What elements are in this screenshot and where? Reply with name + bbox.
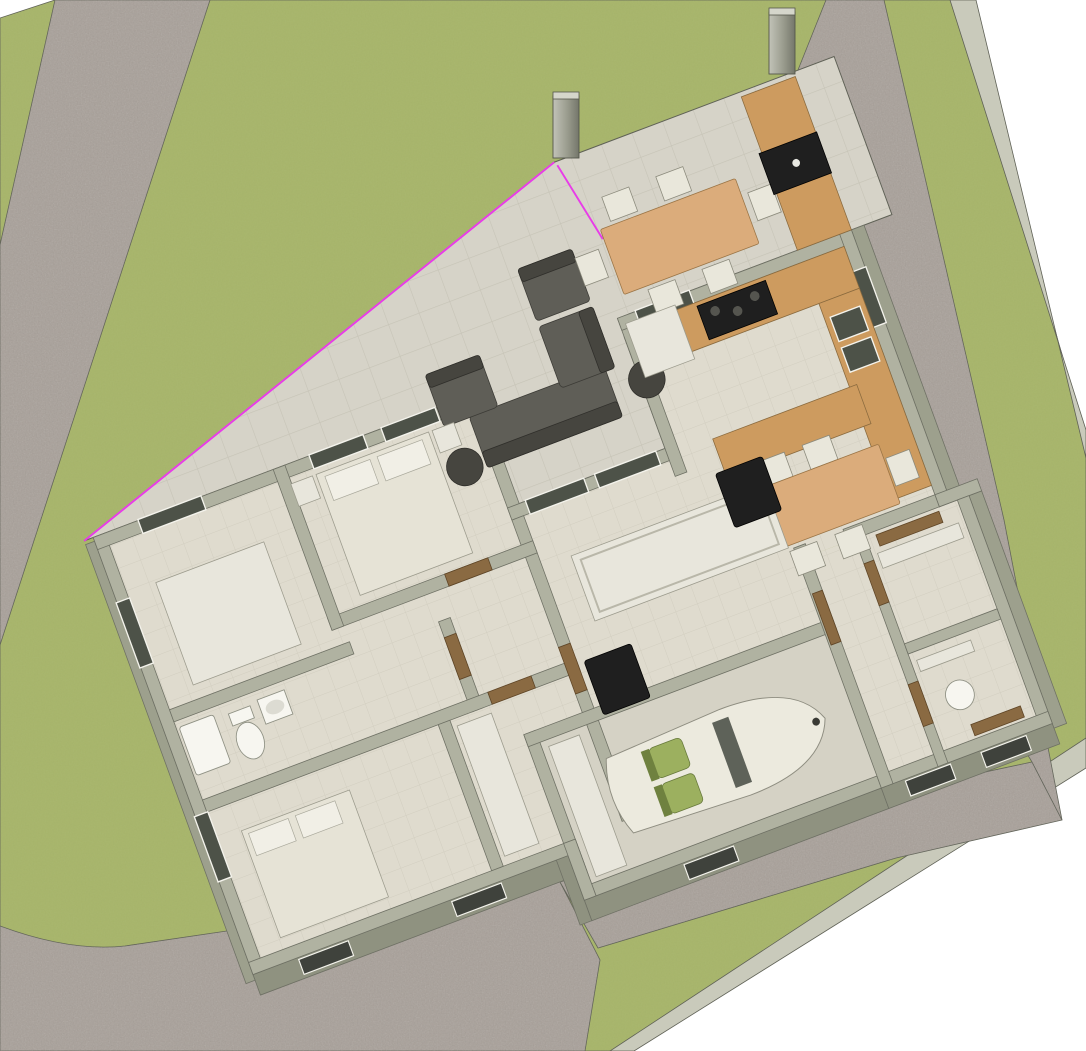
pillar-1-cap bbox=[553, 92, 579, 99]
viewport-canvas[interactable] bbox=[0, 0, 1086, 1051]
pillar-2-cap bbox=[769, 8, 795, 15]
pillar-1[interactable] bbox=[553, 92, 579, 158]
pillar-2[interactable] bbox=[769, 8, 795, 74]
model-viewport[interactable] bbox=[0, 0, 1086, 1051]
